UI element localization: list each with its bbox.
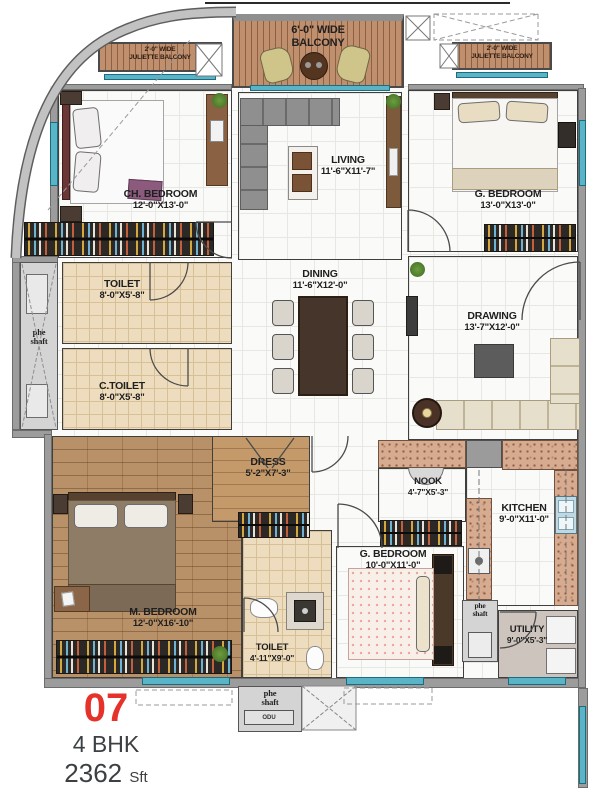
kitchen-counter-top-left: [378, 440, 466, 468]
unit-type: 4 BHK: [44, 730, 168, 759]
outer-wall-left-lower: [44, 434, 52, 682]
g-top-bed-pillow-1: [457, 101, 500, 124]
balcony-main-line1: 6'-0" WIDE: [252, 24, 384, 37]
g-top-wardrobe: [484, 224, 576, 252]
kitchen-fridge: [466, 440, 502, 468]
utility-name: UTILITY: [470, 624, 584, 635]
juliette-left-line1: 2'-0" WIDE: [100, 46, 220, 54]
kitchen-counter-top-right: [502, 440, 578, 470]
kitchen-name: KITCHEN: [468, 502, 580, 514]
toilet-top-name: TOILET: [62, 278, 182, 290]
unit-legend: 07 4 BHK 2362 Sft: [44, 686, 168, 789]
ch-nightstand-bottom: [60, 206, 82, 222]
window-utility: [508, 677, 566, 685]
ch-bed-headboard: [62, 104, 70, 200]
living-dim: 11'-6"X11'-7": [288, 166, 408, 177]
c-toilet-dim: 8'-0"X5'-8": [62, 392, 182, 403]
dress-name: DRESS: [208, 456, 328, 468]
window-right-extension: [579, 706, 586, 784]
drawing-label: DRAWING 13'-7"X12'-0": [432, 310, 552, 334]
shaft-left-line2: shaft: [20, 337, 58, 346]
g-bedroom-top-name: G. BEDROOM: [448, 188, 568, 200]
g-bedroom-bottom-dim: 10'-0"X11'-0": [334, 560, 452, 571]
g-top-nightstand: [434, 93, 450, 110]
g-bottom-bed-pillow: [416, 576, 430, 652]
drawing-dim: 13'-7"X12'-0": [432, 322, 552, 333]
g-bedroom-bottom-label: G. BEDROOM 10'-0"X11'-0": [334, 548, 452, 572]
drawing-plant: [410, 262, 425, 277]
dining-label: DINING 11'-6"X12'-0": [260, 268, 380, 292]
m-bedroom-dim: 12'-0"X16'-10": [100, 618, 226, 629]
juliette-left-window: [104, 74, 216, 80]
ch-bedroom-label: CH. BEDROOM 12'-0"X13'-0": [88, 188, 233, 212]
dining-chair-5: [352, 334, 374, 360]
toilet-m-label: TOILET 4'-11"X9'-0": [214, 642, 330, 663]
ch-nightstand-top: [60, 91, 82, 105]
g-top-side-unit: [558, 122, 576, 148]
toilet-m-shower-drain: [302, 608, 308, 614]
m-bedroom-label: M. BEDROOM 12'-0"X16'-10": [100, 606, 226, 630]
odu-box: ODU: [244, 710, 294, 725]
balcony-table-dot-right: [316, 62, 322, 68]
shaft-left-box-top: [26, 274, 48, 314]
g-bottom-headboard-cap-bottom: [434, 646, 452, 664]
window-m-bedroom-bottom: [142, 677, 230, 685]
window-g-top-right: [579, 120, 586, 186]
m-nightstand-right: [178, 494, 193, 514]
ch-bed-pillow-2: [72, 151, 101, 193]
toilet-m-dim: 4'-11"X9'-0": [214, 653, 330, 663]
drawing-name: DRAWING: [432, 310, 552, 322]
living-label: LIVING 11'-6"X11'-7": [288, 154, 408, 178]
c-toilet-name: C.TOILET: [62, 380, 182, 392]
balcony-sliding-window: [250, 85, 390, 91]
toilet-m-name: TOILET: [214, 642, 330, 653]
toilet-top-dim: 8'-0"X5'-8": [62, 290, 182, 301]
drawing-rug: [474, 344, 514, 378]
unit-area-value: 2362: [64, 758, 122, 788]
drawing-sofa-horizontal: [436, 400, 580, 430]
drawing-sofa-vertical: [550, 338, 580, 404]
g-top-bed-throw: [452, 168, 558, 190]
nook-dim: 4'-7"X5'-3": [372, 487, 484, 497]
dining-chair-2: [272, 334, 294, 360]
dining-chair-6: [352, 368, 374, 394]
ch-bedroom-name: CH. BEDROOM: [88, 188, 233, 200]
dining-dim: 11'-6"X12'-0": [260, 280, 380, 291]
kitchen-hob-knob: [475, 557, 483, 565]
juliette-left-line2: JULIETTE BALCONY: [100, 54, 220, 62]
dining-chair-1: [272, 300, 294, 326]
living-sofa-horizontal: [240, 98, 340, 126]
balcony-table-dot-left: [305, 62, 311, 68]
ch-plant: [212, 93, 227, 108]
drawing-side-table-lamp: [422, 408, 432, 418]
kitchen-counter-right: [554, 470, 578, 606]
unit-area-unit: Sft: [129, 769, 147, 786]
outer-wall-shaft-left: [12, 262, 20, 430]
g-bedroom-top-label: G. BEDROOM 13'-0"X13'-0": [448, 188, 568, 212]
dining-table: [298, 296, 348, 396]
toilet-top-label: TOILET 8'-0"X5'-8": [62, 278, 182, 302]
window-ch-left: [50, 122, 58, 186]
dashed-ledge-top-right: [434, 14, 538, 40]
m-bed-pillow-1: [74, 504, 118, 528]
utility-dim: 9'-0"X5'-3": [470, 635, 584, 645]
juliette-right-window: [456, 72, 548, 78]
m-wardrobe: [56, 640, 232, 674]
shaft-right-line2: shaft: [462, 610, 498, 618]
m-desk-papers: [61, 591, 75, 607]
m-nightstand-left: [53, 494, 68, 514]
ch-bedroom-dim: 12'-0"X13'-0": [88, 200, 233, 211]
kitchen-label: KITCHEN 9'-0"X11'-0": [468, 502, 580, 526]
shaft-left-label: phe shaft: [20, 328, 58, 346]
toilet-m-basin: [250, 598, 278, 618]
juliette-right-line2: JULIETTE BALCONY: [454, 53, 550, 61]
ch-desk-laptop: [210, 120, 224, 142]
top-boundary-line: [205, 2, 510, 4]
juliette-left-label: 2'-0" WIDE JULIETTE BALCONY: [100, 46, 220, 62]
unit-number: 07: [44, 686, 168, 730]
dress-wardrobe: [238, 512, 310, 538]
shaft-bottom-label: phe shaft: [240, 689, 300, 707]
shaft-right-label: phe shaft: [462, 602, 498, 618]
shaft-left-box-bottom: [26, 384, 48, 418]
juliette-right-label: 2'-0" WIDE JULIETTE BALCONY: [454, 45, 550, 61]
hatch-box-right-1: [406, 16, 430, 40]
g-bottom-wardrobe: [380, 520, 462, 546]
nook-name: NOOK: [372, 476, 484, 487]
dining-chair-4: [352, 300, 374, 326]
nook-label: NOOK 4'-7"X5'-3": [372, 476, 484, 497]
m-bed-pillow-2: [124, 504, 168, 528]
g-bedroom-bottom-name: G. BEDROOM: [334, 548, 452, 560]
m-bedroom-name: M. BEDROOM: [100, 606, 226, 618]
g-bedroom-top-dim: 13'-0"X13'-0": [448, 200, 568, 211]
juliette-right-line1: 2'-0" WIDE: [454, 45, 550, 53]
ch-bed-pillow-1: [72, 107, 102, 149]
dress-dim: 5'-2"X7'-3": [208, 468, 328, 479]
odu-label: ODU: [262, 715, 275, 721]
unit-area: 2362 Sft: [44, 759, 168, 789]
c-toilet-label: C.TOILET 8'-0"X5'-8": [62, 380, 182, 404]
balcony-main-label: 6'-0" WIDE BALCONY: [252, 24, 384, 50]
utility-label: UTILITY 9'-0"X5'-3": [470, 624, 584, 645]
floor-plan: 6'-0" WIDE BALCONY 2'-0" WIDE JULIETTE B…: [0, 0, 600, 800]
dress-label: DRESS 5'-2"X7'-3": [208, 456, 328, 480]
dining-chair-3: [272, 368, 294, 394]
kitchen-dim: 9'-0"X11'-0": [468, 514, 580, 525]
g-top-bed-pillow-2: [505, 101, 548, 124]
utility-appliance-2: [546, 648, 576, 674]
window-g-bottom: [346, 677, 424, 685]
shaft-bottom-line2: shaft: [240, 698, 300, 707]
shaft-bottom-hatch: [302, 686, 356, 730]
living-plant: [386, 94, 401, 109]
room-toilet-top: [62, 262, 232, 344]
drawing-tv: [406, 296, 418, 336]
dining-name: DINING: [260, 268, 380, 280]
ch-wardrobe: [24, 222, 214, 256]
living-name: LIVING: [288, 154, 408, 166]
